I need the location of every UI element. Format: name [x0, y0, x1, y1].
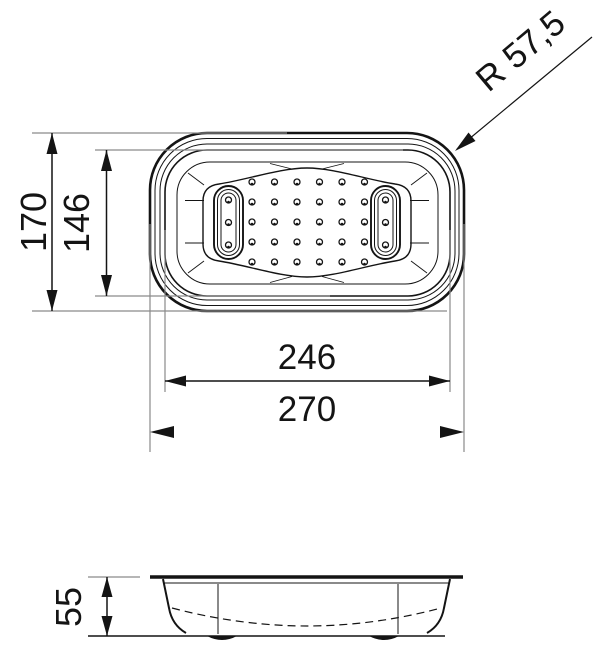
dimension-146: 146 — [56, 150, 112, 296]
drain-hole-shadow — [318, 183, 321, 186]
drain-hole-shadow — [251, 263, 254, 266]
arrowhead — [165, 376, 186, 387]
drain-hole-shadow — [251, 203, 254, 206]
drain-hole-shadow — [363, 243, 366, 246]
drain-hole-shadow — [318, 263, 321, 266]
drain-hole-shadow — [363, 183, 366, 186]
arrowhead — [47, 133, 58, 154]
floor-panel-outline — [203, 168, 411, 277]
side-right-wall — [427, 579, 450, 633]
arrowhead — [47, 290, 58, 311]
side-foot-left — [207, 636, 237, 640]
drain-hole-shadow — [318, 223, 321, 226]
perforation-holes — [249, 179, 368, 265]
drawing-svg: 170 146 246 270 R 57,5 — [0, 0, 600, 645]
dimension-drawing: 170 146 246 270 R 57,5 — [0, 0, 600, 645]
drain-hole-shadow — [341, 223, 344, 226]
drain-hole-shadow — [341, 263, 344, 266]
arrowhead — [150, 426, 174, 438]
top-view — [150, 133, 464, 311]
arrowhead — [429, 376, 450, 387]
right-handle — [371, 186, 400, 259]
drain-hole-shadow — [296, 203, 299, 206]
side-left-wall — [163, 579, 186, 633]
left-handle — [214, 186, 243, 259]
drain-hole-shadow — [251, 183, 254, 186]
corner-transition-lines — [185, 164, 429, 283]
dimension-246: 246 — [165, 338, 450, 387]
radius-label: R 57,5 — [469, 3, 573, 99]
dimension-170-label: 170 — [13, 192, 54, 252]
side-foot-right — [369, 636, 399, 640]
drain-hole-shadow — [273, 243, 276, 246]
dimension-246-label: 246 — [278, 338, 336, 377]
bowl-wall-outline — [177, 162, 438, 284]
drain-hole-shadow — [318, 203, 321, 206]
drain-hole-shadow — [341, 203, 344, 206]
drain-hole-shadow — [273, 223, 276, 226]
drain-hole-shadow — [341, 243, 344, 246]
drain-hole-shadow — [318, 243, 321, 246]
left-handle-holes — [226, 197, 232, 248]
arrowhead — [101, 275, 112, 296]
arrowhead — [102, 577, 113, 597]
dimension-270: 270 — [150, 390, 464, 438]
drain-hole-shadow — [251, 243, 254, 246]
dimension-55: 55 — [48, 577, 113, 636]
drain-hole-shadow — [341, 183, 344, 186]
arrowhead — [102, 616, 113, 636]
drain-hole-shadow — [363, 203, 366, 206]
dimension-55-label: 55 — [48, 587, 89, 627]
drain-hole-shadow — [363, 223, 366, 226]
arrowhead — [101, 150, 112, 171]
drain-hole-shadow — [273, 263, 276, 266]
side-view — [88, 577, 463, 640]
dimension-270-label: 270 — [278, 390, 336, 429]
right-handle-holes — [383, 197, 389, 248]
drain-hole-shadow — [296, 263, 299, 266]
arrowhead — [440, 426, 464, 438]
drain-hole-shadow — [273, 203, 276, 206]
drain-hole-shadow — [251, 223, 254, 226]
drain-hole-shadow — [296, 223, 299, 226]
drain-hole-shadow — [296, 183, 299, 186]
drain-hole-shadow — [363, 263, 366, 266]
side-hidden-bottom-curve — [172, 608, 441, 626]
radius-callout: R 57,5 — [455, 3, 592, 151]
drain-hole-shadow — [273, 183, 276, 186]
dimension-170: 170 — [13, 133, 58, 311]
arrowhead — [455, 133, 476, 152]
drain-hole-shadow — [296, 243, 299, 246]
rim-inner-outline — [165, 150, 450, 296]
dimension-146-label: 146 — [56, 193, 97, 253]
